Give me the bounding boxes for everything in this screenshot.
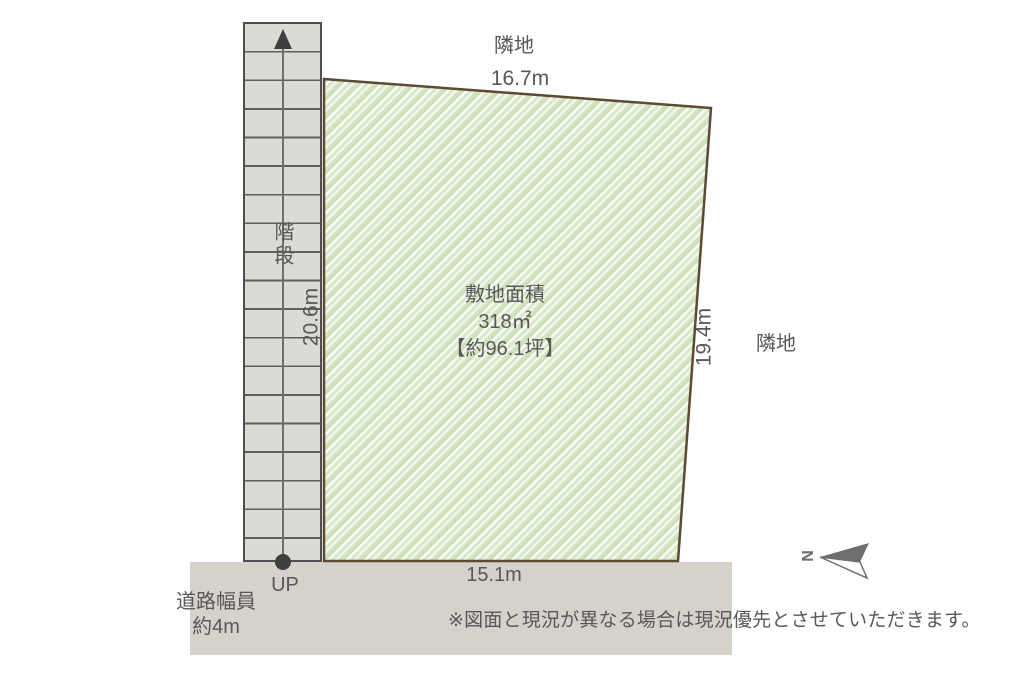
north-arrow-icon	[820, 543, 869, 578]
site-area-value: 318㎡	[446, 309, 565, 336]
road-width-label: 道路幅員 約4m	[176, 590, 256, 640]
dimension-right: 19.4m	[694, 308, 715, 366]
stairs-centerline	[282, 42, 284, 560]
north-label: N	[801, 550, 817, 562]
adjacent-land-top-label: 隣地	[494, 36, 534, 56]
stairs-up-arrow-icon	[274, 29, 292, 49]
site-area-block: 敷地面積 318㎡ 【約96.1坪】	[446, 282, 565, 363]
road-width-line1: 道路幅員	[176, 590, 256, 615]
disclaimer-text: ※図面と現況が異なる場合は現況優先とさせていただきます。	[448, 611, 981, 630]
stairs-label: 階段	[272, 221, 292, 269]
road-width-line2: 約4m	[176, 615, 256, 640]
stairs-start-dot	[275, 554, 291, 570]
up-label: UP	[271, 575, 299, 595]
dimension-left: 20.6m	[301, 288, 322, 346]
dimension-bottom: 15.1m	[466, 565, 522, 585]
site-area-tsubo: 【約96.1坪】	[446, 336, 565, 363]
dimension-top: 16.7m	[491, 68, 549, 89]
adjacent-land-right-label: 隣地	[756, 334, 796, 354]
site-plan-canvas: 隣地 16.7m 敷地面積 318㎡ 【約96.1坪】 階段 20.6m 19.…	[0, 0, 1024, 683]
site-area-title: 敷地面積	[446, 282, 565, 309]
